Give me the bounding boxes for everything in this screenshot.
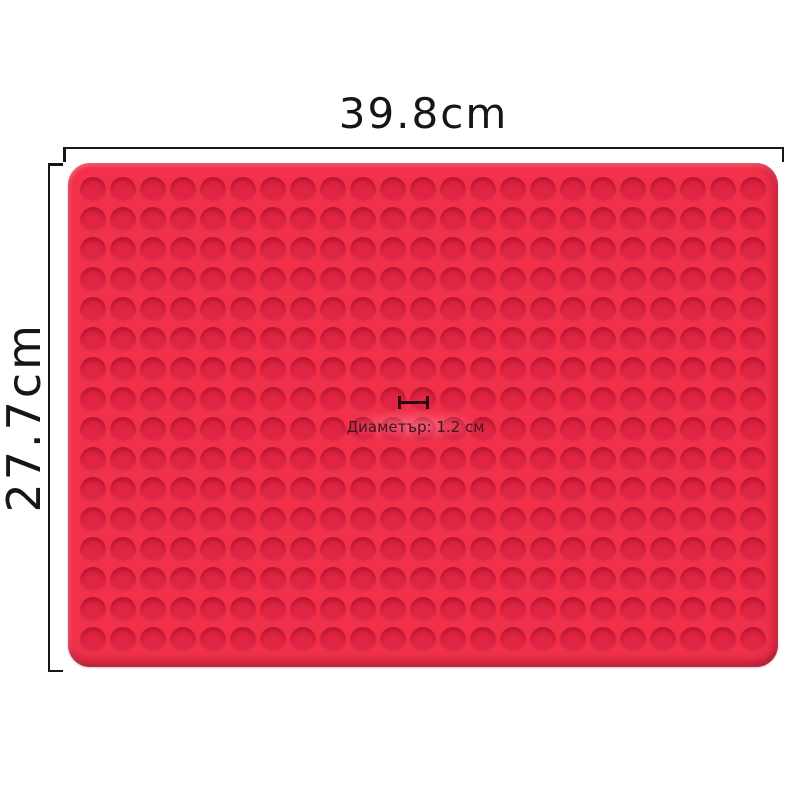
mat-bump bbox=[560, 207, 586, 233]
mat-bump bbox=[320, 597, 346, 623]
mat-bump bbox=[410, 207, 436, 233]
mat-bump bbox=[710, 627, 736, 653]
mat-bump bbox=[440, 357, 466, 383]
mat-bump bbox=[80, 387, 106, 413]
mat-bump bbox=[260, 387, 286, 413]
mat-bump bbox=[710, 177, 736, 203]
mat-bump bbox=[230, 567, 256, 593]
mat-bump bbox=[80, 417, 106, 443]
mat-bump bbox=[260, 567, 286, 593]
mat-bump bbox=[470, 327, 496, 353]
mat-bump bbox=[680, 417, 706, 443]
mat-bump bbox=[320, 627, 346, 653]
mat-bump bbox=[710, 357, 736, 383]
mat-bump bbox=[110, 327, 136, 353]
mat-bump bbox=[680, 537, 706, 563]
mat-bump bbox=[350, 207, 376, 233]
mat-bump bbox=[350, 297, 376, 323]
mat-bump bbox=[440, 627, 466, 653]
mat-bump bbox=[620, 627, 646, 653]
mat-bump bbox=[680, 567, 706, 593]
mat-bump bbox=[170, 327, 196, 353]
mat-bump bbox=[530, 627, 556, 653]
mat-bump bbox=[740, 177, 766, 203]
mat-bump bbox=[440, 327, 466, 353]
mat-bump bbox=[680, 267, 706, 293]
mat-bump bbox=[320, 297, 346, 323]
mat-bump bbox=[110, 507, 136, 533]
mat-bump bbox=[620, 267, 646, 293]
mat-bump bbox=[740, 297, 766, 323]
mat-bump bbox=[740, 537, 766, 563]
mat-bump bbox=[650, 537, 676, 563]
mat-bump bbox=[230, 417, 256, 443]
mat-bump bbox=[620, 297, 646, 323]
mat-bump bbox=[140, 237, 166, 263]
mat-bump bbox=[680, 477, 706, 503]
mat-bump bbox=[110, 357, 136, 383]
mat-bump bbox=[590, 627, 616, 653]
mat-bump bbox=[380, 297, 406, 323]
mat-bump bbox=[500, 507, 526, 533]
mat-bump bbox=[350, 567, 376, 593]
mat-bump bbox=[350, 177, 376, 203]
mat-bump bbox=[620, 417, 646, 443]
mat-bump bbox=[80, 267, 106, 293]
mat-bump bbox=[470, 207, 496, 233]
mat-bump bbox=[110, 207, 136, 233]
mat-bump bbox=[380, 357, 406, 383]
mat-bump bbox=[560, 357, 586, 383]
mat-bump bbox=[560, 387, 586, 413]
mat-bump bbox=[500, 597, 526, 623]
mat-bump bbox=[650, 207, 676, 233]
mat-bump bbox=[620, 537, 646, 563]
mat-bump bbox=[590, 417, 616, 443]
mat-bump bbox=[560, 537, 586, 563]
mat-bump bbox=[260, 207, 286, 233]
mat-bump bbox=[710, 417, 736, 443]
mat-bump bbox=[170, 447, 196, 473]
mat-bump bbox=[380, 237, 406, 263]
diameter-label: Диаметър: 1.2 см bbox=[313, 417, 518, 437]
mat-bump bbox=[530, 357, 556, 383]
mat-bump bbox=[110, 477, 136, 503]
mat-bump bbox=[710, 447, 736, 473]
mat-bump bbox=[380, 537, 406, 563]
mat-bump bbox=[500, 387, 526, 413]
mat-bump bbox=[200, 567, 226, 593]
mat-bump bbox=[170, 537, 196, 563]
mat-bump bbox=[230, 507, 256, 533]
mat-bump bbox=[200, 447, 226, 473]
mat-bump bbox=[260, 597, 286, 623]
mat-bump bbox=[590, 447, 616, 473]
mat-bump bbox=[380, 267, 406, 293]
mat-bump bbox=[650, 297, 676, 323]
mat-bump bbox=[470, 177, 496, 203]
mat-bump bbox=[590, 507, 616, 533]
mat-bump bbox=[470, 567, 496, 593]
mat-bump bbox=[320, 237, 346, 263]
mat-bump bbox=[470, 597, 496, 623]
mat-bump bbox=[320, 477, 346, 503]
mat-bump bbox=[620, 357, 646, 383]
mat-bump bbox=[140, 387, 166, 413]
mat-bump bbox=[110, 177, 136, 203]
mat-bump bbox=[140, 627, 166, 653]
mat-bump bbox=[500, 447, 526, 473]
mat-bump bbox=[80, 507, 106, 533]
mat-bump bbox=[680, 447, 706, 473]
mat-bump bbox=[470, 507, 496, 533]
mat-bump bbox=[230, 627, 256, 653]
mat-bump bbox=[260, 357, 286, 383]
mat-bump bbox=[470, 447, 496, 473]
mat-bump bbox=[710, 567, 736, 593]
mat-bump bbox=[560, 627, 586, 653]
diameter-marker-bar bbox=[398, 401, 429, 404]
mat-bump bbox=[290, 627, 316, 653]
mat-bump bbox=[440, 387, 466, 413]
mat-bump bbox=[620, 477, 646, 503]
mat-bump bbox=[710, 267, 736, 293]
mat-bump bbox=[80, 297, 106, 323]
mat-bump bbox=[410, 177, 436, 203]
mat-bump bbox=[140, 537, 166, 563]
mat-bump bbox=[80, 357, 106, 383]
mat-bump bbox=[530, 537, 556, 563]
mat-bump-grid bbox=[78, 175, 768, 655]
mat-bump bbox=[500, 237, 526, 263]
mat-bump bbox=[410, 237, 436, 263]
mat-bump bbox=[410, 567, 436, 593]
mat-bump bbox=[530, 207, 556, 233]
mat-bump bbox=[140, 597, 166, 623]
mat-bump bbox=[80, 477, 106, 503]
mat-bump bbox=[350, 387, 376, 413]
mat-bump bbox=[80, 447, 106, 473]
mat-bump bbox=[380, 207, 406, 233]
height-dimension-line bbox=[48, 163, 63, 672]
mat-bump bbox=[710, 237, 736, 263]
mat-bump bbox=[290, 237, 316, 263]
mat-bump bbox=[440, 267, 466, 293]
mat-bump bbox=[230, 387, 256, 413]
mat-bump bbox=[650, 507, 676, 533]
mat-bump bbox=[680, 357, 706, 383]
mat-bump bbox=[290, 447, 316, 473]
mat-bump bbox=[230, 207, 256, 233]
mat-bump bbox=[500, 177, 526, 203]
mat-bump bbox=[680, 627, 706, 653]
mat-bump bbox=[260, 237, 286, 263]
mat-bump bbox=[80, 537, 106, 563]
mat-bump bbox=[110, 387, 136, 413]
diameter-marker bbox=[398, 396, 429, 409]
height-dimension: 27.7cm bbox=[0, 163, 48, 672]
mat-bump bbox=[170, 357, 196, 383]
mat-bump bbox=[650, 267, 676, 293]
mat-bump bbox=[650, 597, 676, 623]
mat-bump bbox=[650, 447, 676, 473]
mat-bump bbox=[80, 567, 106, 593]
mat-bump bbox=[620, 597, 646, 623]
mat-bump bbox=[200, 507, 226, 533]
mat-bump bbox=[320, 447, 346, 473]
mat-bump bbox=[500, 207, 526, 233]
mat-bump bbox=[530, 327, 556, 353]
mat-bump bbox=[290, 567, 316, 593]
mat-bump bbox=[140, 477, 166, 503]
mat-bump bbox=[740, 357, 766, 383]
mat-bump bbox=[380, 327, 406, 353]
mat-bump bbox=[320, 357, 346, 383]
mat-bump bbox=[620, 207, 646, 233]
mat-bump bbox=[170, 237, 196, 263]
mat-bump bbox=[170, 387, 196, 413]
mat-bump bbox=[650, 627, 676, 653]
mat-bump bbox=[110, 447, 136, 473]
mat-bump bbox=[440, 237, 466, 263]
mat-bump bbox=[260, 327, 286, 353]
mat-bump bbox=[530, 387, 556, 413]
mat-bump bbox=[410, 537, 436, 563]
mat-bump bbox=[620, 177, 646, 203]
mat-bump bbox=[80, 597, 106, 623]
mat-bump bbox=[320, 537, 346, 563]
mat-bump bbox=[560, 417, 586, 443]
mat-bump bbox=[560, 567, 586, 593]
mat-bump bbox=[140, 507, 166, 533]
width-dimension-line bbox=[63, 147, 784, 162]
mat-bump bbox=[530, 237, 556, 263]
mat-bump bbox=[740, 207, 766, 233]
mat-bump bbox=[140, 417, 166, 443]
mat-bump bbox=[110, 627, 136, 653]
mat-bump bbox=[590, 477, 616, 503]
mat-bump bbox=[500, 567, 526, 593]
mat-bump bbox=[740, 237, 766, 263]
mat-bump bbox=[530, 507, 556, 533]
mat-bump bbox=[530, 567, 556, 593]
mat-bump bbox=[200, 537, 226, 563]
mat-bump bbox=[200, 627, 226, 653]
mat-bump bbox=[110, 297, 136, 323]
mat-bump bbox=[380, 447, 406, 473]
mat-bump bbox=[440, 597, 466, 623]
mat-bump bbox=[500, 267, 526, 293]
mat-bump bbox=[620, 327, 646, 353]
mat-bump bbox=[290, 207, 316, 233]
mat-bump bbox=[590, 537, 616, 563]
mat-bump bbox=[170, 477, 196, 503]
mat-bump bbox=[530, 297, 556, 323]
mat-bump bbox=[650, 387, 676, 413]
mat-bump bbox=[290, 597, 316, 623]
mat-bump bbox=[170, 567, 196, 593]
mat-bump bbox=[500, 627, 526, 653]
mat-bump bbox=[410, 327, 436, 353]
mat-bump bbox=[500, 297, 526, 323]
mat-bump bbox=[740, 267, 766, 293]
mat-bump bbox=[320, 267, 346, 293]
mat-bump bbox=[260, 477, 286, 503]
mat-bump bbox=[560, 297, 586, 323]
mat-bump bbox=[560, 237, 586, 263]
mat-bump bbox=[380, 177, 406, 203]
mat-bump bbox=[590, 387, 616, 413]
mat-bump bbox=[260, 177, 286, 203]
mat-bump bbox=[650, 237, 676, 263]
mat-bump bbox=[650, 567, 676, 593]
mat-bump bbox=[500, 477, 526, 503]
mat-bump bbox=[110, 267, 136, 293]
mat-bump bbox=[440, 477, 466, 503]
mat-bump bbox=[410, 297, 436, 323]
mat-bump bbox=[290, 537, 316, 563]
mat-bump bbox=[260, 297, 286, 323]
mat-bump bbox=[440, 567, 466, 593]
mat-bump bbox=[290, 477, 316, 503]
mat-bump bbox=[590, 357, 616, 383]
mat-bump bbox=[560, 327, 586, 353]
mat-bump bbox=[560, 447, 586, 473]
mat-bump bbox=[530, 267, 556, 293]
mat-bump bbox=[740, 327, 766, 353]
mat-bump bbox=[110, 417, 136, 443]
mat-bump bbox=[350, 267, 376, 293]
mat-bump bbox=[680, 177, 706, 203]
mat-bump bbox=[350, 537, 376, 563]
mat-bump bbox=[230, 327, 256, 353]
mat-bump bbox=[560, 267, 586, 293]
mat-bump bbox=[680, 597, 706, 623]
mat-bump bbox=[500, 327, 526, 353]
mat-bump bbox=[440, 177, 466, 203]
mat-bump bbox=[260, 537, 286, 563]
mat-bump bbox=[380, 597, 406, 623]
mat-bump bbox=[530, 477, 556, 503]
mat-bump bbox=[230, 297, 256, 323]
mat-bump bbox=[350, 627, 376, 653]
mat-bump bbox=[680, 507, 706, 533]
mat-bump bbox=[140, 267, 166, 293]
mat-bump bbox=[230, 447, 256, 473]
mat-bump bbox=[200, 207, 226, 233]
mat-bump bbox=[620, 387, 646, 413]
mat-bump bbox=[350, 477, 376, 503]
mat-bump bbox=[440, 207, 466, 233]
mat-bump bbox=[320, 567, 346, 593]
mat-bump bbox=[230, 237, 256, 263]
mat-bump bbox=[650, 357, 676, 383]
mat-bump bbox=[590, 567, 616, 593]
mat-bump bbox=[710, 507, 736, 533]
mat-bump bbox=[440, 447, 466, 473]
mat-bump bbox=[530, 597, 556, 623]
mat-bump bbox=[440, 507, 466, 533]
mat-bump bbox=[470, 297, 496, 323]
mat-bump bbox=[650, 417, 676, 443]
mat-bump bbox=[80, 237, 106, 263]
mat-bump bbox=[320, 177, 346, 203]
mat-bump bbox=[740, 387, 766, 413]
mat-bump bbox=[170, 507, 196, 533]
mat-bump bbox=[230, 477, 256, 503]
mat-bump bbox=[260, 447, 286, 473]
mat-bump bbox=[170, 267, 196, 293]
mat-bump bbox=[110, 537, 136, 563]
mat-bump bbox=[350, 447, 376, 473]
mat-bump bbox=[320, 207, 346, 233]
mat-bump bbox=[440, 297, 466, 323]
mat-bump bbox=[380, 507, 406, 533]
mat-bump bbox=[110, 597, 136, 623]
mat-bump bbox=[350, 597, 376, 623]
height-dimension-label: 27.7cm bbox=[0, 322, 51, 513]
mat-bump bbox=[620, 507, 646, 533]
mat-bump bbox=[560, 177, 586, 203]
mat-bump bbox=[380, 627, 406, 653]
mat-bump bbox=[290, 357, 316, 383]
mat-bump bbox=[200, 327, 226, 353]
mat-bump bbox=[200, 267, 226, 293]
mat-bump bbox=[680, 327, 706, 353]
mat-bump bbox=[740, 597, 766, 623]
mat-bump bbox=[170, 627, 196, 653]
mat-bump bbox=[80, 627, 106, 653]
mat-bump bbox=[110, 567, 136, 593]
mat-bump bbox=[200, 597, 226, 623]
mat-bump bbox=[110, 237, 136, 263]
mat-bump bbox=[710, 387, 736, 413]
mat-bump bbox=[320, 507, 346, 533]
mat-bump bbox=[680, 207, 706, 233]
mat-bump bbox=[590, 597, 616, 623]
mat-bump bbox=[500, 537, 526, 563]
mat-bump bbox=[530, 177, 556, 203]
mat-bump bbox=[140, 297, 166, 323]
mat-bump bbox=[590, 297, 616, 323]
mat-bump bbox=[350, 357, 376, 383]
silicone-mat bbox=[68, 163, 778, 667]
mat-bump bbox=[470, 357, 496, 383]
mat-bump bbox=[200, 297, 226, 323]
mat-bump bbox=[740, 447, 766, 473]
mat-bump bbox=[710, 477, 736, 503]
mat-bump bbox=[290, 507, 316, 533]
mat-bump bbox=[470, 627, 496, 653]
mat-bump bbox=[200, 357, 226, 383]
mat-bump bbox=[260, 627, 286, 653]
mat-bump bbox=[140, 177, 166, 203]
mat-bump bbox=[350, 327, 376, 353]
mat-bump bbox=[620, 447, 646, 473]
mat-bump bbox=[620, 567, 646, 593]
mat-bump bbox=[260, 507, 286, 533]
mat-bump bbox=[290, 267, 316, 293]
mat-bump bbox=[410, 357, 436, 383]
mat-bump bbox=[410, 597, 436, 623]
mat-bump bbox=[410, 447, 436, 473]
mat-bump bbox=[140, 447, 166, 473]
mat-bump bbox=[170, 177, 196, 203]
mat-bump bbox=[740, 567, 766, 593]
mat-bump bbox=[620, 237, 646, 263]
mat-bump bbox=[410, 267, 436, 293]
mat-bump bbox=[230, 267, 256, 293]
